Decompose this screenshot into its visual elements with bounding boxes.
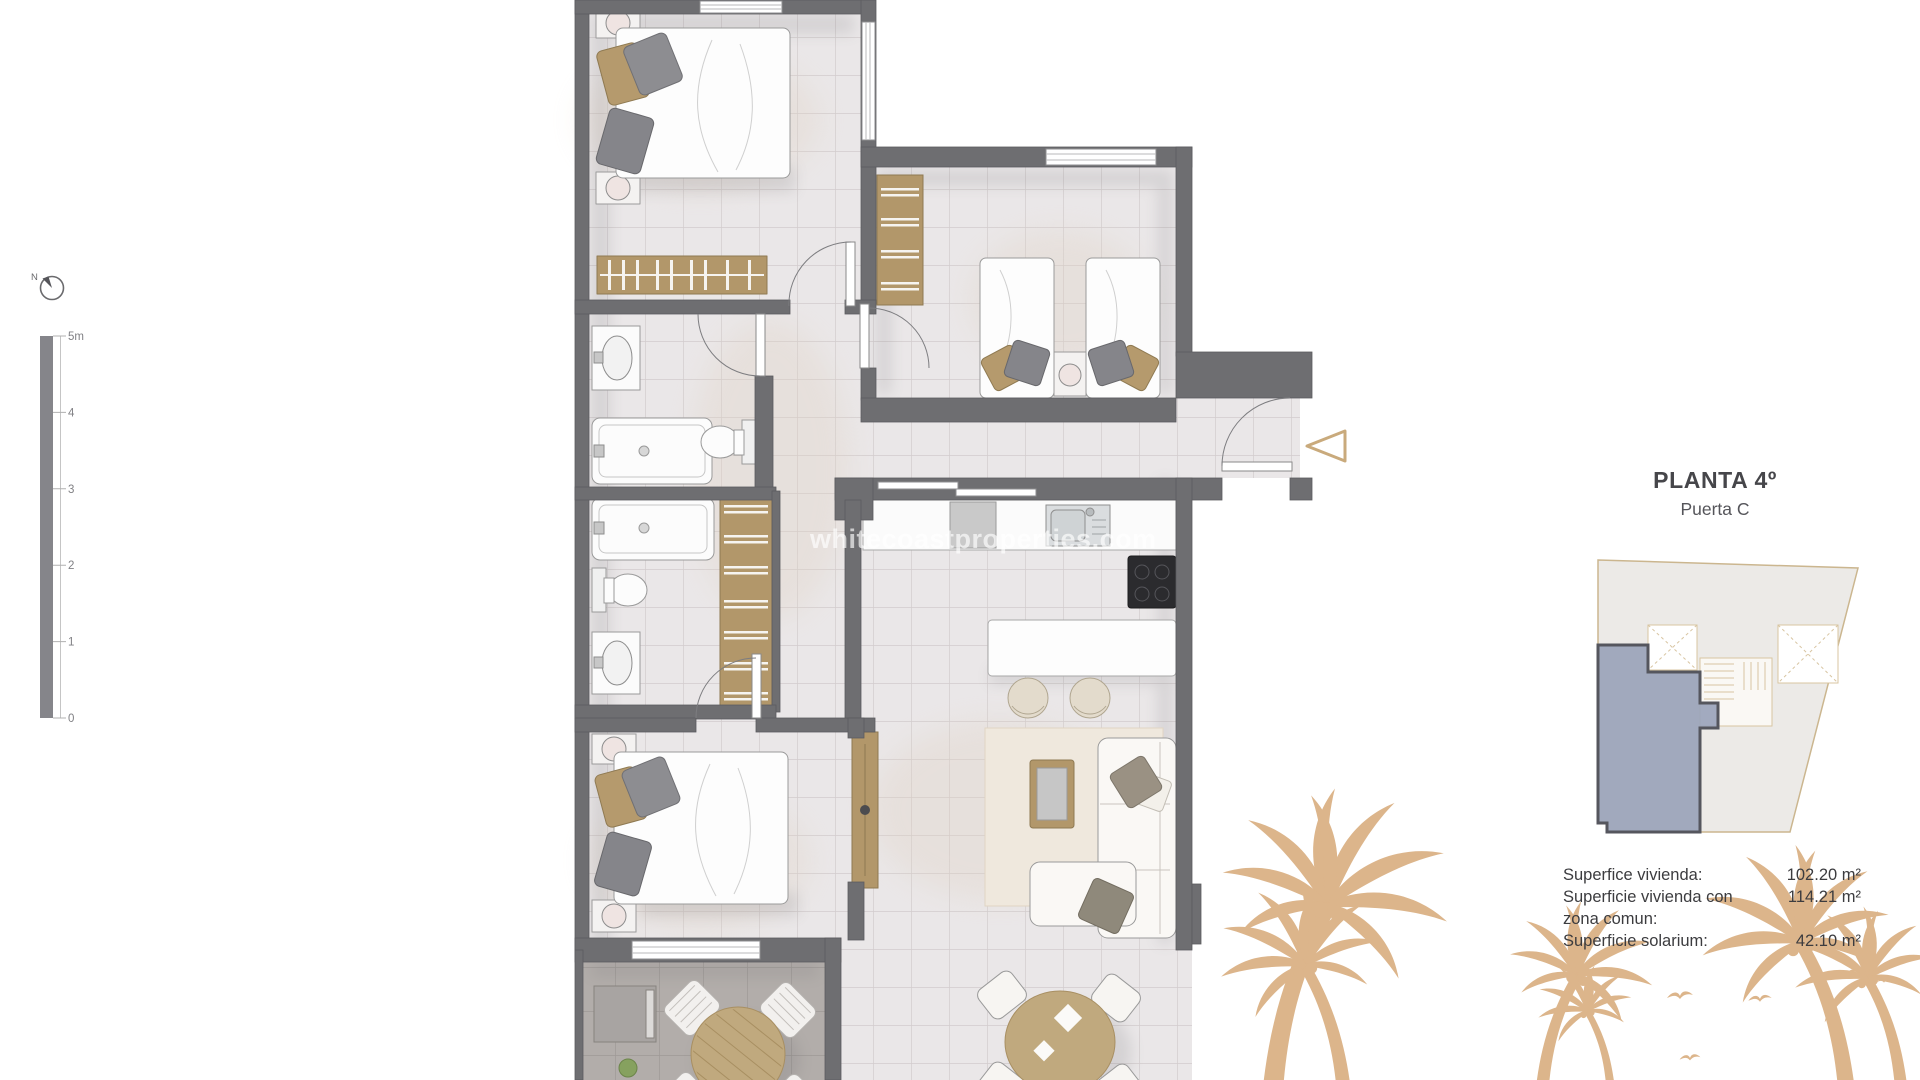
plan-title-block: PLANTA 4º Puerta C bbox=[1595, 467, 1835, 520]
area-row: Superfice vivienda: 102.20 m² bbox=[1563, 864, 1861, 886]
sink bbox=[1046, 505, 1110, 546]
bathtub bbox=[592, 498, 714, 560]
area-row: zona comun: bbox=[1563, 908, 1861, 930]
area-row: Superficie vivienda con 114.21 m² bbox=[1563, 886, 1861, 908]
window bbox=[1046, 149, 1156, 165]
plant bbox=[619, 1059, 637, 1077]
scale-label: 1 bbox=[68, 637, 74, 649]
scale-label: 2 bbox=[68, 560, 74, 572]
stool bbox=[1070, 678, 1110, 718]
toilet-seat bbox=[604, 578, 614, 603]
seagull-icon bbox=[1748, 995, 1771, 1002]
lamp bbox=[1059, 364, 1081, 386]
scale-label: 5m bbox=[68, 331, 84, 343]
island bbox=[988, 620, 1176, 676]
storage-door bbox=[646, 990, 654, 1038]
entrance-arrow-icon bbox=[1307, 431, 1345, 461]
area-value: 102.20 m² bbox=[1787, 864, 1861, 886]
toilet-bowl bbox=[701, 426, 739, 458]
bedroom-3 bbox=[592, 734, 788, 932]
toilet-bowl bbox=[609, 574, 647, 606]
counter bbox=[863, 500, 1176, 550]
stool bbox=[1008, 678, 1048, 718]
scale-label: 3 bbox=[68, 484, 74, 496]
washbasin bbox=[602, 641, 632, 685]
seagull-icon bbox=[1680, 1054, 1701, 1060]
faucet bbox=[594, 657, 603, 668]
compass-icon: N bbox=[31, 272, 64, 300]
area-label: Superfice vivienda: bbox=[1563, 864, 1702, 886]
cooktop bbox=[1128, 556, 1176, 608]
area-value: 114.21 m² bbox=[1788, 886, 1861, 908]
surface-areas: Superfice vivienda: 102.20 m² Superficie… bbox=[1563, 864, 1861, 952]
sliding-door-panel bbox=[852, 732, 878, 888]
drain bbox=[639, 523, 649, 533]
area-label: Superficie solarium: bbox=[1563, 930, 1708, 952]
bathtub bbox=[592, 418, 712, 484]
lamp bbox=[606, 176, 630, 200]
window bbox=[862, 22, 875, 140]
scale-label: 4 bbox=[68, 407, 75, 419]
area-label: zona comun: bbox=[1563, 908, 1657, 930]
page-title: PLANTA 4º bbox=[1595, 467, 1835, 494]
faucet bbox=[594, 522, 604, 534]
seagull-icon bbox=[1667, 991, 1693, 999]
window bbox=[632, 941, 760, 959]
area-label: Superficie vivienda con bbox=[1563, 886, 1733, 908]
fridge bbox=[950, 502, 996, 548]
scale-bar: 5m 4 3 2 1 0 bbox=[40, 331, 84, 725]
coffee-table bbox=[1030, 760, 1074, 828]
faucet bbox=[594, 445, 604, 457]
window bbox=[700, 1, 782, 13]
toilet-seat bbox=[734, 430, 744, 455]
unit-highlight bbox=[1598, 645, 1718, 832]
page-subtitle: Puerta C bbox=[1595, 499, 1835, 520]
area-value: 42.10 m² bbox=[1796, 930, 1861, 952]
site-plan bbox=[1598, 560, 1858, 832]
washbasin bbox=[602, 336, 632, 380]
drain bbox=[639, 446, 649, 456]
hall-wardrobe bbox=[720, 493, 772, 712]
scale-label: 0 bbox=[68, 713, 74, 725]
compass-label: N bbox=[31, 272, 38, 283]
floorplan-page: 5m 4 3 2 1 0 N bbox=[0, 0, 1920, 1080]
faucet bbox=[594, 352, 603, 363]
lamp bbox=[602, 904, 626, 928]
area-row: Superficie solarium: 42.10 m² bbox=[1563, 930, 1861, 952]
